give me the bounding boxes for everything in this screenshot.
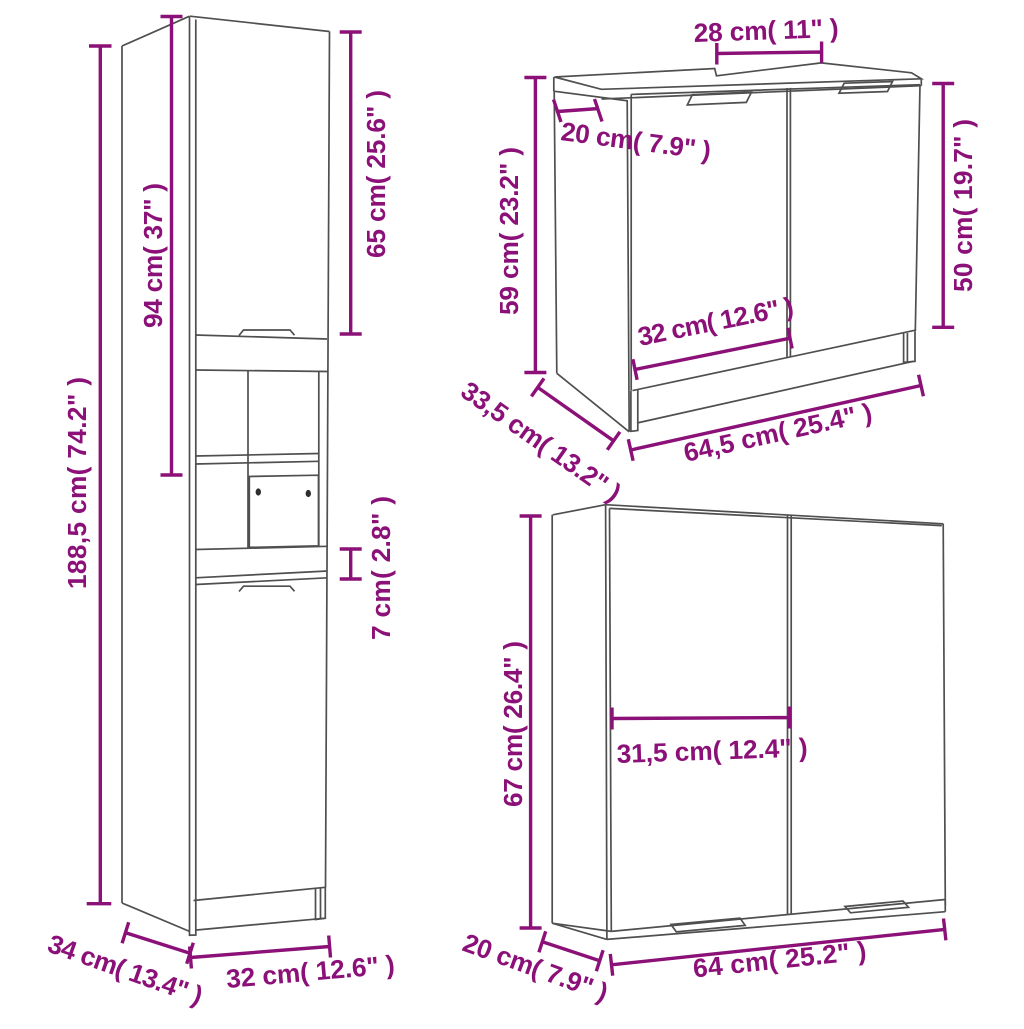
svg-text:188,5 cm( 74.2" ): 188,5 cm( 74.2" ) — [62, 377, 92, 589]
svg-text:65 cm( 25.6" ): 65 cm( 25.6" ) — [361, 90, 391, 258]
svg-text:7 cm( 2.8" ): 7 cm( 2.8" ) — [366, 496, 396, 640]
svg-text:59 cm( 23.2" ): 59 cm( 23.2" ) — [494, 147, 524, 315]
svg-text:67 cm( 26.4" ): 67 cm( 26.4" ) — [498, 641, 528, 807]
svg-text:50 cm( 19.7" ): 50 cm( 19.7" ) — [948, 119, 978, 292]
svg-text:28 cm( 11" ): 28 cm( 11" ) — [693, 13, 839, 48]
svg-text:94 cm( 37" ): 94 cm( 37" ) — [138, 183, 168, 328]
